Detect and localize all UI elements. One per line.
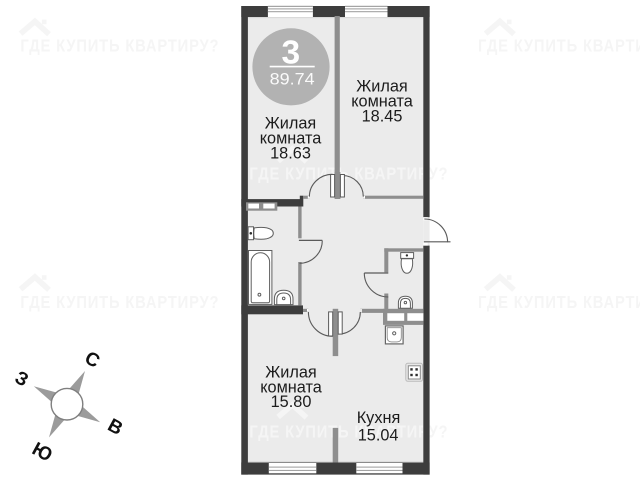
svg-text:Кухня: Кухня bbox=[357, 409, 401, 427]
svg-text:15.04: 15.04 bbox=[358, 426, 399, 444]
svg-text:ГДЕ КУПИТЬ КВАРТИРУ?: ГДЕ КУПИТЬ КВАРТИРУ? bbox=[478, 35, 640, 55]
svg-text:ГДЕ КУПИТЬ КВАРТИРУ?: ГДЕ КУПИТЬ КВАРТИРУ? bbox=[20, 35, 219, 55]
svg-text:18.63: 18.63 bbox=[270, 145, 311, 163]
svg-text:ГДЕ КУПИТЬ КВАРТИРУ?: ГДЕ КУПИТЬ КВАРТИРУ? bbox=[249, 422, 448, 442]
svg-text:ГДЕ КУПИТЬ КВАРТИРУ?: ГДЕ КУПИТЬ КВАРТИРУ? bbox=[20, 292, 219, 312]
svg-text:ГДЕ КУПИТЬ КВАРТИРУ?: ГДЕ КУПИТЬ КВАРТИРУ? bbox=[478, 292, 640, 312]
svg-text:89.74: 89.74 bbox=[270, 70, 315, 89]
svg-text:ГДЕ КУПИТЬ КВАРТИРУ?: ГДЕ КУПИТЬ КВАРТИРУ? bbox=[249, 163, 448, 183]
svg-text:15.80: 15.80 bbox=[271, 393, 312, 411]
svg-text:18.45: 18.45 bbox=[362, 107, 403, 125]
